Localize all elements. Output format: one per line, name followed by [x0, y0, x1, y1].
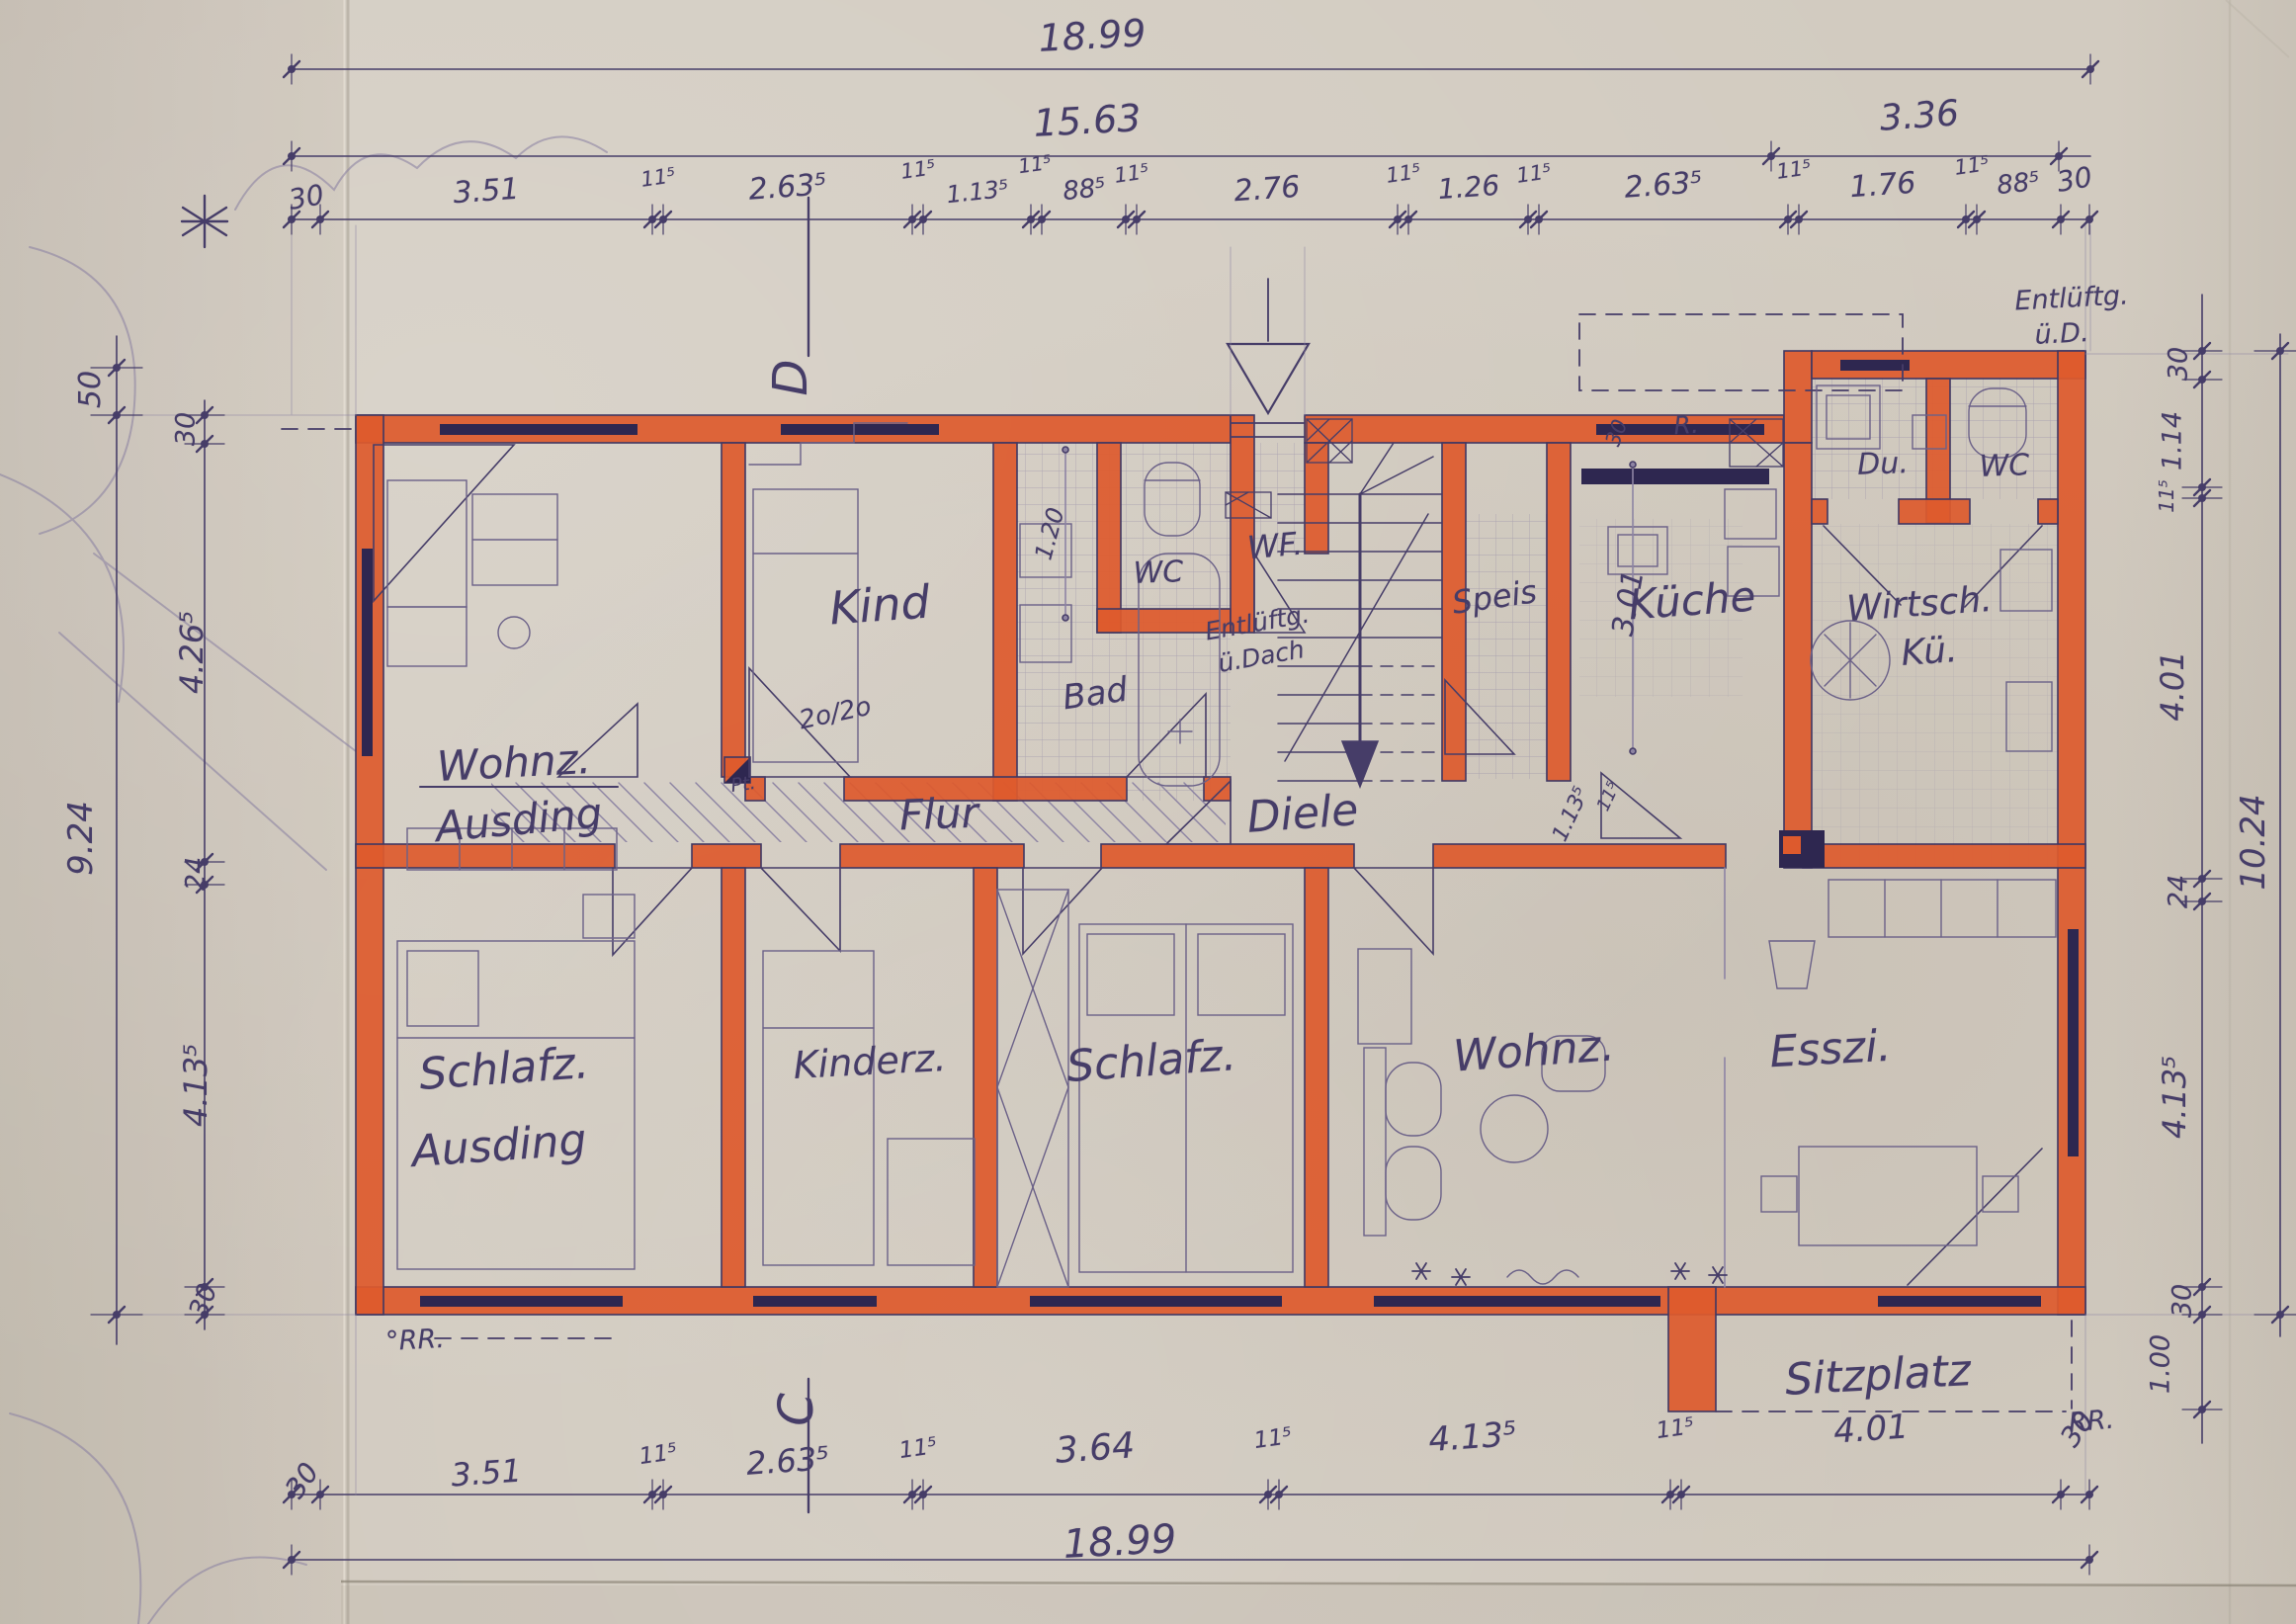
dim-bottom-9: 4.01 [1832, 1410, 1910, 1448]
room-label-wirtsch-kue-1: Wirtsch. [1845, 582, 1993, 628]
room-label-schlafz-ausding-2: Ausding [410, 1119, 588, 1174]
dim-left-6: 30 [185, 1280, 221, 1322]
dim-right-7: 1.00 [2148, 1334, 2174, 1394]
dim-top-12: 2.76 [1233, 173, 1302, 208]
dim-interior-6: 30 [1603, 417, 1632, 449]
dim-top-left-span: 15.63 [1033, 99, 1143, 142]
dim-top-7: 11⁵ [899, 157, 937, 183]
dim-interior-4: 2o/2o [797, 694, 873, 734]
dim-bottom-total: 18.99 [1063, 1519, 1177, 1565]
dim-top-3: 30 [287, 181, 326, 214]
room-label-wc-mitte: WC [1133, 557, 1184, 589]
dim-left-4: 24 [183, 857, 210, 891]
section-marker-c: C [773, 1393, 820, 1426]
dim-interior-7: R. [1672, 412, 1699, 439]
dim-left-3: 4.26⁵ [176, 611, 208, 694]
dim-right-1: 1.14 [2160, 411, 2186, 470]
dim-top-4: 3.51 [453, 175, 521, 210]
anno-rr-rechts: RR. [2068, 1407, 2115, 1437]
dim-right-0: 30 [2166, 347, 2192, 381]
dim-bottom-1: 3.51 [450, 1455, 522, 1492]
dim-left-0: 50 [76, 371, 106, 408]
room-label-wc-rechts: WC [1979, 451, 2030, 482]
dim-interior-3: 11⁵ [1594, 780, 1623, 814]
label-layer: 18.9915.633.36303.5111⁵2.63⁵11⁵1.13⁵11⁵8… [0, 0, 2296, 1624]
dim-interior-5: Pt. [729, 774, 756, 796]
dim-bottom-7: 4.13⁵ [1427, 1417, 1517, 1457]
dim-bottom-3: 2.63⁵ [745, 1442, 830, 1480]
room-label-kind: Kind [828, 579, 931, 632]
dim-top-13: 11⁵ [1385, 161, 1422, 187]
dim-left-2: 30 [173, 412, 200, 446]
scanned-floor-plan-sheet: 18.9915.633.36303.5111⁵2.63⁵11⁵1.13⁵11⁵8… [0, 0, 2296, 1624]
room-label-kinderz: Kinderz. [793, 1039, 947, 1084]
dim-top-total: 18.99 [1038, 14, 1148, 57]
dim-right-6: 30 [2169, 1284, 2196, 1318]
dim-bottom-5: 3.64 [1055, 1428, 1136, 1470]
anno-entlueftg-dach-2: ü.Dach [1217, 637, 1307, 676]
dim-top-14: 1.26 [1437, 172, 1500, 204]
dim-right-4: 24 [2166, 875, 2192, 908]
room-label-wohnz-ausding-1: Wohnz. [436, 738, 592, 788]
anno-wf: WF. [1246, 528, 1305, 564]
dim-top-21: 30 [2055, 163, 2094, 197]
dim-top-9: 11⁵ [1017, 152, 1053, 176]
dim-bottom-6: 11⁵ [1252, 1425, 1293, 1453]
dim-top-17: 11⁵ [1775, 157, 1813, 183]
dim-top-right-span: 3.36 [1879, 96, 1960, 137]
dim-top-8: 1.13⁵ [945, 177, 1009, 207]
section-marker-d: D [767, 360, 814, 396]
room-label-sitzplatz: Sitzplatz [1784, 1349, 1972, 1403]
room-label-wirtsch-kue-2: Kü. [1900, 633, 1958, 672]
dim-right-3: 4.01 [2157, 650, 2188, 721]
dim-left-outer-total: 9.24 [64, 801, 98, 876]
dim-top-18: 1.76 [1849, 169, 1917, 204]
anno-entlueftg-ud-2: ü.D. [2034, 319, 2089, 349]
dim-top-10: 88⁵ [1062, 175, 1107, 205]
dim-left-5: 4.13⁵ [180, 1044, 212, 1127]
dim-bottom-2: 11⁵ [638, 1441, 678, 1469]
dim-bottom-8: 11⁵ [1655, 1415, 1695, 1443]
dim-top-16: 2.63⁵ [1624, 168, 1704, 203]
room-label-wohnz-ausding-2: Ausding [434, 793, 604, 849]
room-label-diele: Diele [1245, 789, 1359, 840]
room-label-flur: Flur [898, 793, 978, 837]
room-label-schlafz-ausding-1: Schlafz. [418, 1042, 590, 1097]
room-label-esszi: Esszi. [1768, 1025, 1892, 1074]
dim-right-2: 11⁵ [2157, 479, 2176, 512]
dim-top-19: 11⁵ [1953, 153, 1991, 179]
dim-interior-2: 1.13⁵ [1550, 784, 1593, 845]
room-label-speis: Speis [1450, 575, 1538, 619]
dim-top-15: 11⁵ [1515, 161, 1553, 187]
room-label-schlafz: Schlafz. [1065, 1034, 1237, 1089]
dim-right-outer-total: 10.24 [2237, 794, 2270, 890]
dim-interior-0: 1.20 [1031, 505, 1067, 562]
room-label-bad: Bad [1061, 673, 1130, 716]
dim-right-5: 4.13⁵ [2159, 1056, 2190, 1139]
dim-top-11: 11⁵ [1113, 161, 1150, 187]
dim-bottom-4: 11⁵ [897, 1435, 938, 1463]
dim-top-20: 88⁵ [1996, 169, 2041, 199]
dim-bottom-0: 30 [281, 1458, 323, 1502]
room-label-wohnz: Wohnz. [1452, 1024, 1616, 1078]
room-label-kueche: Küche [1627, 576, 1756, 627]
anno-entlueftg-ud-1: Entlüftg. [2014, 283, 2129, 315]
room-label-du: Du. [1857, 449, 1910, 480]
dim-top-6: 2.63⁵ [748, 170, 828, 205]
anno-rr-links: °RR. [385, 1325, 446, 1355]
dim-top-5: 11⁵ [639, 165, 677, 191]
